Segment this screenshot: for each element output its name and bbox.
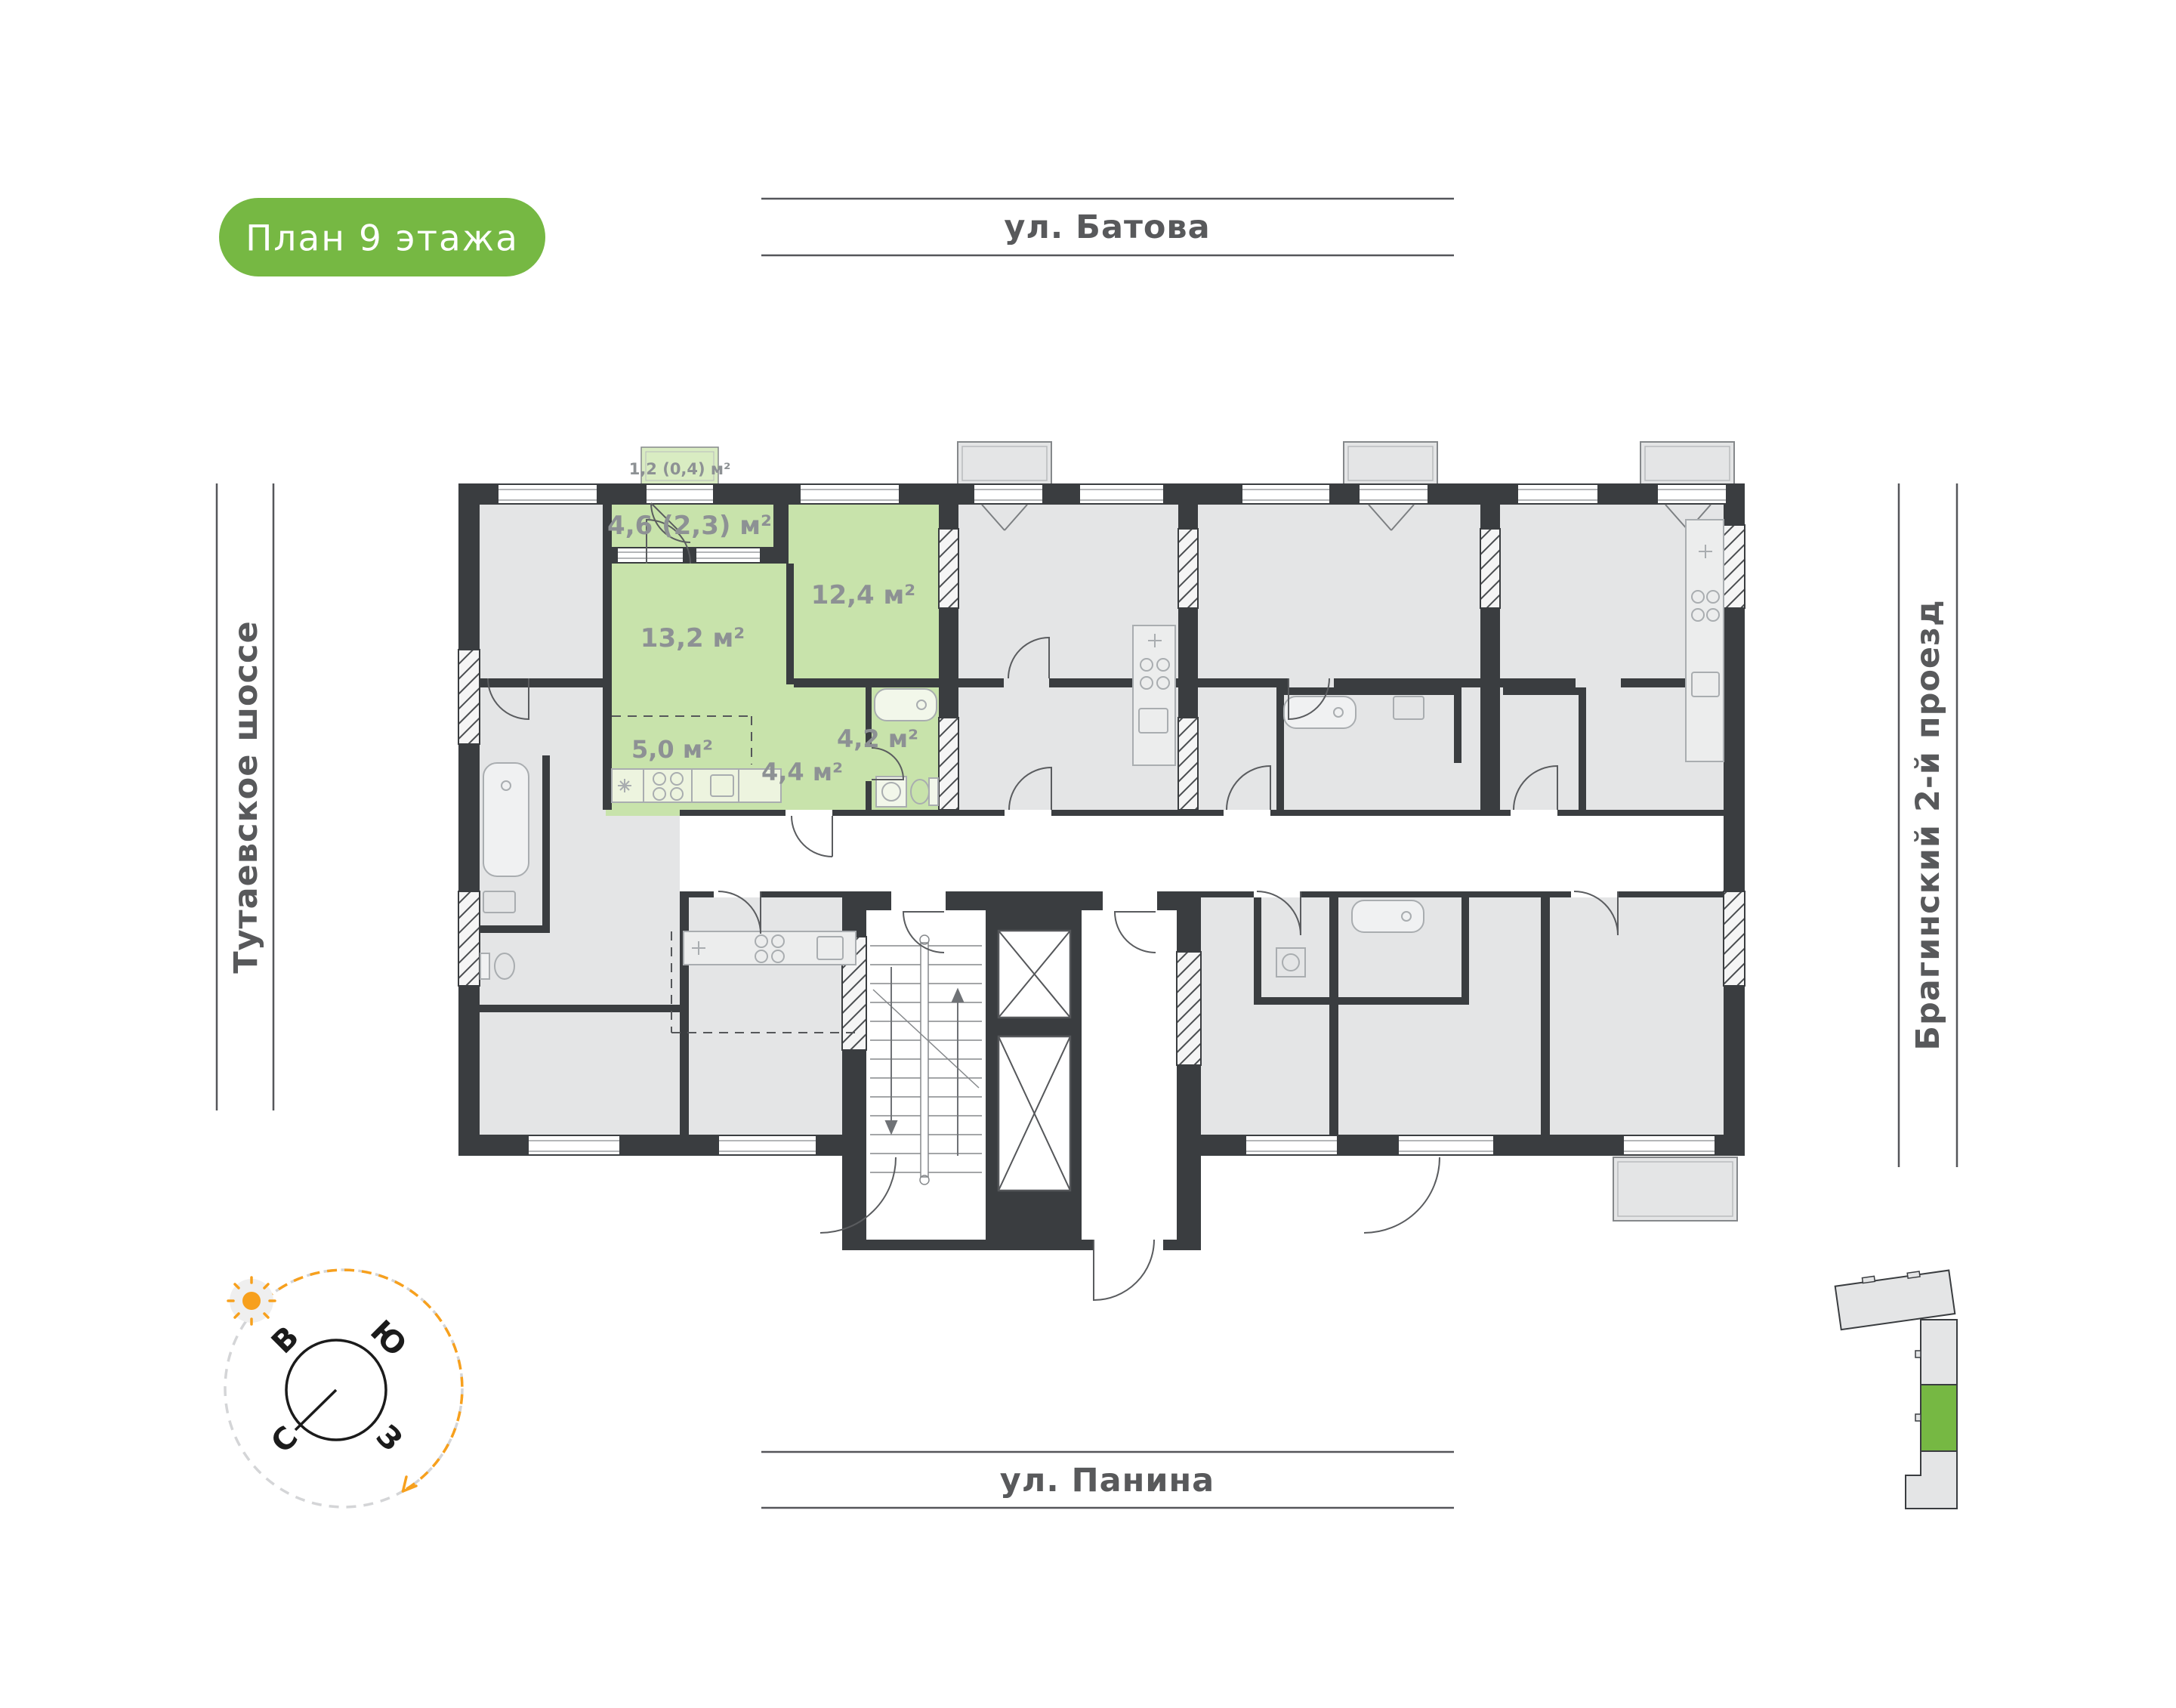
kitchen-bottom-left [684, 931, 856, 965]
floor-badge: План 9 этажа [219, 198, 545, 276]
balcony-bottom-right [1613, 1157, 1737, 1221]
sun-icon [228, 1277, 275, 1324]
location-minimap [1835, 1266, 1957, 1509]
kitchen-strip-apt2 [1133, 625, 1175, 765]
floor-plan-page: План 9 этажа ул. Батова ул. Панина Тутае… [0, 0, 2176, 1708]
label-kitchen: 5,0 м² [631, 735, 713, 764]
street-right-label: Брагинский 2-й проезд [1909, 599, 1947, 1051]
label-balcony: 1,2 (0,4) м² [629, 460, 731, 478]
balcony-gray-1 [958, 442, 1051, 485]
compass-west-label: З [369, 1419, 409, 1459]
label-bedroom: 12,4 м² [811, 580, 915, 610]
kitchen-strip-apt4 [1686, 520, 1724, 761]
balcony-gray-3 [1640, 442, 1734, 485]
balconies-top [958, 442, 1734, 485]
entrance-doorway [1094, 1230, 1163, 1250]
street-bottom: ул. Панина [761, 1452, 1454, 1508]
elevators [998, 931, 1070, 1191]
street-left-label: Тутаевское шоссе [227, 620, 265, 973]
kitchen-counter-highlighted [612, 769, 781, 802]
street-right: Брагинский 2-й проезд [1899, 483, 1957, 1167]
compass: В Ю С З [225, 1270, 462, 1507]
entrance-vestibule [1082, 910, 1177, 1240]
minimap-section-lower [1906, 1451, 1957, 1509]
label-bathroom: 4,2 м² [837, 724, 918, 753]
street-left: Тутаевское шоссе [217, 483, 273, 1110]
minimap-current-section[interactable] [1921, 1385, 1957, 1451]
washer-icon [876, 777, 906, 807]
street-bottom-label: ул. Панина [1000, 1462, 1215, 1500]
label-living-room: 13,2 м² [640, 623, 745, 653]
minimap-section-upper [1921, 1320, 1957, 1385]
minimap-notch-2 [1915, 1414, 1921, 1421]
street-top: ул. Батова [761, 199, 1454, 255]
street-top-label: ул. Батова [1004, 208, 1210, 246]
label-hallway: 4,4 м² [761, 758, 843, 786]
balcony-gray-2 [1344, 442, 1437, 485]
floor-badge-label: План 9 этажа [245, 218, 519, 260]
bathtub-icon [875, 689, 937, 721]
minimap-notch-1 [1915, 1351, 1921, 1357]
label-loggia: 4,6 (2,3) м² [607, 511, 772, 541]
corridor [680, 816, 1724, 891]
